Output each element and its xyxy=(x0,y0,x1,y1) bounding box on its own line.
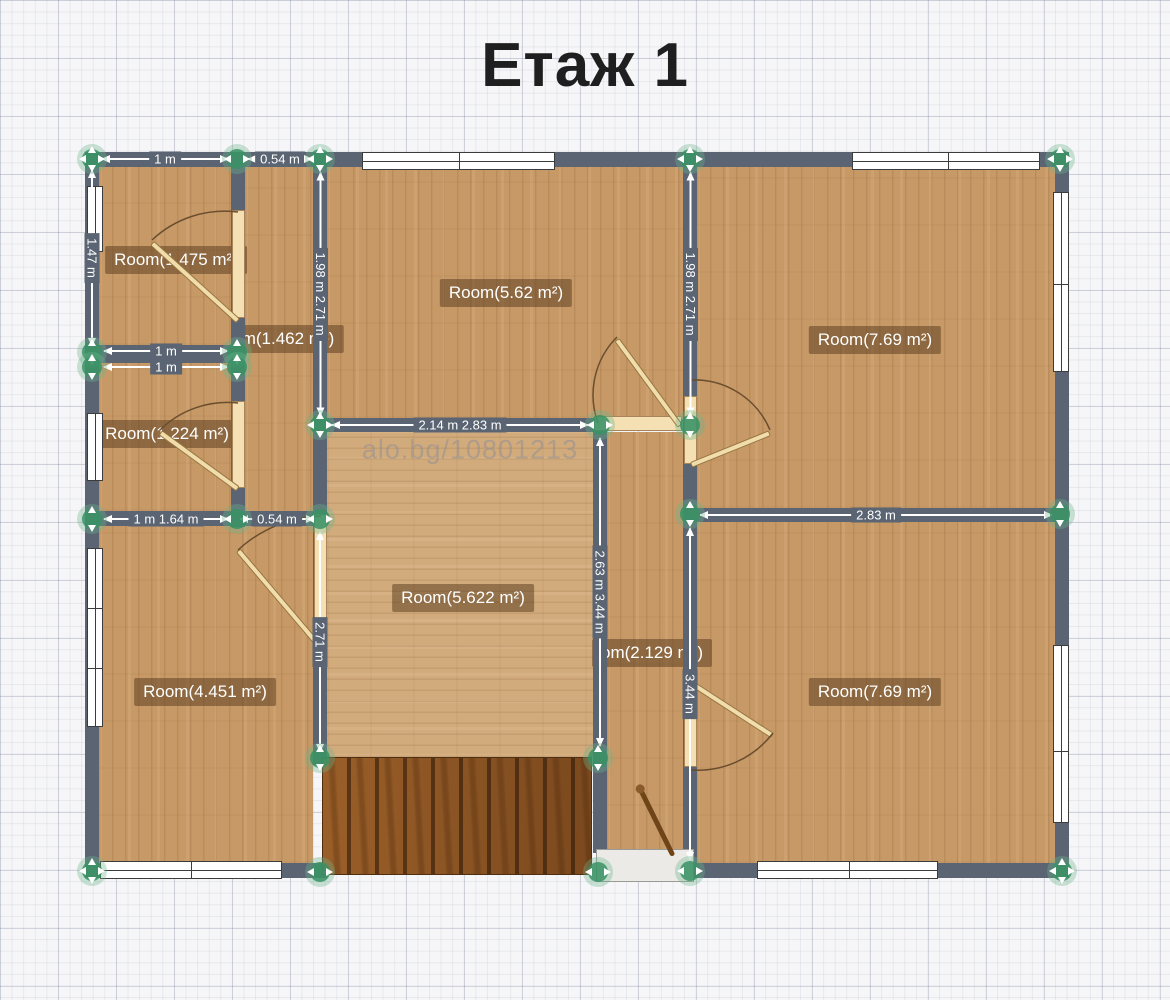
window-divider xyxy=(459,153,460,169)
handle-arrow-icon xyxy=(326,868,333,876)
handle-arrow-icon xyxy=(686,520,694,527)
handle-arrow-icon xyxy=(606,421,613,429)
window-6 xyxy=(757,861,938,879)
wall-handle-2[interactable] xyxy=(305,144,335,174)
handle-arrow-icon xyxy=(1058,877,1066,884)
dimension-1: 0.54 m xyxy=(248,158,312,160)
dimension-label: 1 m 1.64 m xyxy=(128,512,203,527)
dimension-3: 1 m xyxy=(104,366,228,368)
handle-arrow-icon xyxy=(233,354,241,361)
window-divider xyxy=(88,608,102,609)
handle-arrow-icon xyxy=(98,155,105,163)
handle-arrow-icon xyxy=(1049,867,1056,875)
handle-arrow-icon xyxy=(686,431,694,438)
handle-arrow-icon xyxy=(88,339,96,346)
dimension-label: 0.54 m xyxy=(255,152,305,167)
handle-arrow-icon xyxy=(585,868,592,876)
wall-handle-11[interactable] xyxy=(222,504,252,534)
dimension-label: 2.83 m xyxy=(851,508,901,523)
handle-arrow-icon xyxy=(88,165,96,172)
dimension-label: 0.54 m xyxy=(252,512,302,527)
handle-arrow-icon xyxy=(88,354,96,361)
handle-arrow-icon xyxy=(88,506,96,513)
handle-arrow-icon xyxy=(79,867,86,875)
handle-arrow-icon xyxy=(686,501,694,508)
handle-arrow-icon xyxy=(316,764,324,771)
handle-arrow-icon xyxy=(316,412,324,419)
handle-arrow-icon xyxy=(326,421,333,429)
handle-arrow-icon xyxy=(88,373,96,380)
handle-arrow-icon xyxy=(604,868,611,876)
dimension-0: 1 m xyxy=(102,158,228,160)
dimension-10: 1.98 m 2.71 m xyxy=(689,172,691,415)
wall-handle-3[interactable] xyxy=(675,144,705,174)
handle-arrow-icon xyxy=(307,515,314,523)
wall-handle-23[interactable] xyxy=(1047,856,1077,886)
wall-handle-16[interactable] xyxy=(585,410,615,440)
room-769-top-label: Room(7.69 m²) xyxy=(809,326,941,354)
room-562-label: Room(5.62 m²) xyxy=(440,279,572,307)
floorplan-canvas: Етаж 1 Room(1.475 m²)m(1.462 m²)Room(5.6… xyxy=(0,0,1170,1000)
wall-handle-15[interactable] xyxy=(305,857,335,887)
handle-arrow-icon xyxy=(307,421,314,429)
window-8 xyxy=(1053,645,1069,823)
dimension-12: 2.63 m 3.44 m xyxy=(599,438,601,746)
handle-arrow-icon xyxy=(1056,146,1064,153)
wall-handle-8[interactable] xyxy=(77,856,107,886)
window-7 xyxy=(1053,192,1069,372)
handle-arrow-icon xyxy=(307,155,314,163)
window-0 xyxy=(362,152,555,170)
wall-handle-20[interactable] xyxy=(675,499,705,529)
handle-arrow-icon xyxy=(316,146,324,153)
handle-arrow-icon xyxy=(1047,155,1054,163)
wall-handle-22[interactable] xyxy=(1045,499,1075,529)
handle-arrow-icon xyxy=(88,525,96,532)
handle-arrow-icon xyxy=(98,867,105,875)
handle-arrow-icon xyxy=(1056,165,1064,172)
dimension-label: 2.71 m xyxy=(313,617,328,667)
window-divider xyxy=(88,668,102,669)
dimension-11: 2.71 m xyxy=(319,532,321,752)
wall-handle-7[interactable] xyxy=(77,504,107,534)
dimension-9: 1.98 m 2.71 m xyxy=(319,172,321,415)
wall-handle-6[interactable] xyxy=(77,352,107,382)
handle-arrow-icon xyxy=(224,515,231,523)
handle-arrow-icon xyxy=(594,745,602,752)
handle-arrow-icon xyxy=(307,868,314,876)
handle-arrow-icon xyxy=(696,155,703,163)
dimension-label: 3.44 m xyxy=(683,669,698,719)
room-4451-label: Room(4.451 m²) xyxy=(134,678,276,706)
dimension-label: 1 m xyxy=(150,344,182,359)
dimension-4: 1 m 1.64 m xyxy=(104,518,228,520)
handle-arrow-icon xyxy=(326,515,333,523)
wall-handle-1[interactable] xyxy=(222,144,252,174)
handle-arrow-icon xyxy=(88,858,96,865)
window-4 xyxy=(87,548,103,727)
dimension-7: 2.83 m xyxy=(700,514,1052,516)
handle-arrow-icon xyxy=(243,155,250,163)
handle-arrow-icon xyxy=(243,515,250,523)
dimension-13: 3.44 m xyxy=(689,528,691,860)
window-divider xyxy=(948,153,949,169)
watermark: alo.bg/10801213 xyxy=(362,435,578,466)
handle-arrow-icon xyxy=(316,431,324,438)
window-divider xyxy=(849,862,850,878)
window-divider xyxy=(191,862,192,878)
dimension-2: 1 m xyxy=(104,350,228,352)
handle-arrow-icon xyxy=(224,155,231,163)
handle-arrow-icon xyxy=(1058,858,1066,865)
wall-handle-12[interactable] xyxy=(305,410,335,440)
handle-arrow-icon xyxy=(316,165,324,172)
wall-handle-13[interactable] xyxy=(305,504,335,534)
handle-arrow-icon xyxy=(233,373,241,380)
handle-arrow-icon xyxy=(79,155,86,163)
window-divider xyxy=(1054,751,1068,752)
dimension-label: 2.63 m 3.44 m xyxy=(593,545,608,638)
wall-handle-19[interactable] xyxy=(675,410,705,440)
dimension-label: 1 m xyxy=(149,152,181,167)
door-opening-0 xyxy=(232,210,245,318)
floor-title: Етаж 1 xyxy=(0,30,1170,101)
handle-arrow-icon xyxy=(686,146,694,153)
handle-arrow-icon xyxy=(1056,520,1064,527)
handle-arrow-icon xyxy=(677,155,684,163)
handle-arrow-icon xyxy=(88,146,96,153)
handle-arrow-icon xyxy=(88,877,96,884)
wall-handle-0[interactable] xyxy=(77,144,107,174)
handle-arrow-icon xyxy=(326,155,333,163)
wall-handle-14[interactable] xyxy=(305,743,335,773)
dimension-label: 1.98 m 2.71 m xyxy=(683,247,698,340)
window-divider xyxy=(1054,284,1068,285)
window-1 xyxy=(852,152,1040,170)
room-5622-label: Room(5.622 m²) xyxy=(392,584,534,612)
handle-arrow-icon xyxy=(696,867,703,875)
dimension-label: 1.47 m xyxy=(85,233,100,283)
dimension-label: 1.98 m 2.71 m xyxy=(313,247,328,340)
handle-arrow-icon xyxy=(1066,155,1073,163)
dimension-label: 2.14 m 2.83 m xyxy=(413,418,506,433)
wall-handle-18[interactable] xyxy=(583,857,613,887)
stairs xyxy=(322,757,592,875)
handle-arrow-icon xyxy=(316,745,324,752)
handle-arrow-icon xyxy=(686,412,694,419)
handle-arrow-icon xyxy=(677,867,684,875)
handle-arrow-icon xyxy=(233,339,241,346)
wall-handle-17[interactable] xyxy=(583,743,613,773)
dimension-label: 1 m xyxy=(150,360,182,375)
door-opening-1 xyxy=(232,401,245,488)
wall-handle-21[interactable] xyxy=(675,856,705,886)
dimension-8: 1.47 m xyxy=(91,170,93,346)
wall-handle-4[interactable] xyxy=(1045,144,1075,174)
handle-arrow-icon xyxy=(587,421,594,429)
handle-arrow-icon xyxy=(1056,501,1064,508)
window-3 xyxy=(87,413,103,481)
wall-handle-10[interactable] xyxy=(222,352,252,382)
window-5 xyxy=(100,861,282,879)
handle-arrow-icon xyxy=(594,764,602,771)
handle-arrow-icon xyxy=(686,165,694,172)
dimension-6: 2.14 m 2.83 m xyxy=(332,424,588,426)
handle-arrow-icon xyxy=(1068,867,1075,875)
room-769-bottom-label: Room(7.69 m²) xyxy=(809,678,941,706)
